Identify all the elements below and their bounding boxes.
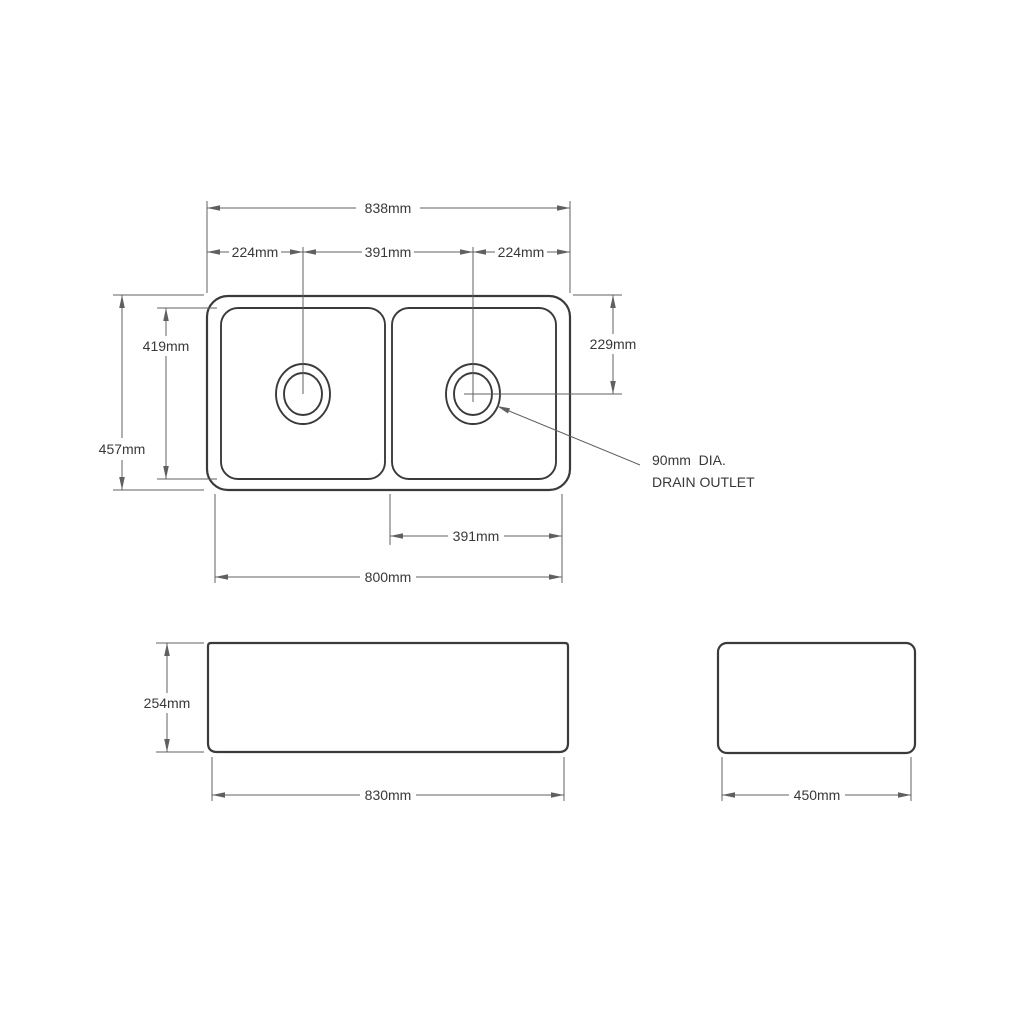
dim-drain-center-depth-label: 229mm bbox=[590, 336, 637, 352]
dim-side-width-label: 450mm bbox=[794, 787, 841, 803]
dim-front-width-label: 830mm bbox=[365, 787, 412, 803]
side-view: 450mm bbox=[718, 643, 915, 803]
sink-dimension-drawing: 838mm 224mm 391mm 224mm 419mm 457mm 229m… bbox=[0, 0, 1024, 1024]
front-view-extension-lines bbox=[156, 643, 564, 801]
dim-left-drain-offset-label: 224mm bbox=[232, 244, 279, 260]
top-view: 838mm 224mm 391mm 224mm 419mm 457mm 229m… bbox=[99, 200, 755, 585]
drain-note-leader-line bbox=[497, 406, 640, 465]
front-view-dimension-lines bbox=[167, 643, 564, 795]
sink-outer-rim bbox=[207, 296, 570, 490]
dim-overall-depth-label: 457mm bbox=[99, 441, 146, 457]
dim-right-drain-offset-label: 224mm bbox=[498, 244, 545, 260]
drain-note-line2: DRAIN OUTLET bbox=[652, 474, 755, 490]
dim-base-width-label: 800mm bbox=[365, 569, 412, 585]
side-elevation-outline bbox=[718, 643, 915, 753]
dim-front-height-label: 254mm bbox=[144, 695, 191, 711]
drain-note-line1: 90mm DIA. bbox=[652, 452, 726, 468]
dim-right-bowl-base-width-label: 391mm bbox=[453, 528, 500, 544]
dim-drain-spacing-label: 391mm bbox=[365, 244, 412, 260]
technical-drawing-canvas: 838mm 224mm 391mm 224mm 419mm 457mm 229m… bbox=[0, 0, 1024, 1024]
dim-overall-width-label: 838mm bbox=[365, 200, 412, 216]
dim-bowl-inner-depth-label: 419mm bbox=[143, 338, 190, 354]
front-view: 254mm 830mm bbox=[144, 643, 568, 803]
front-elevation-outline bbox=[208, 643, 568, 752]
